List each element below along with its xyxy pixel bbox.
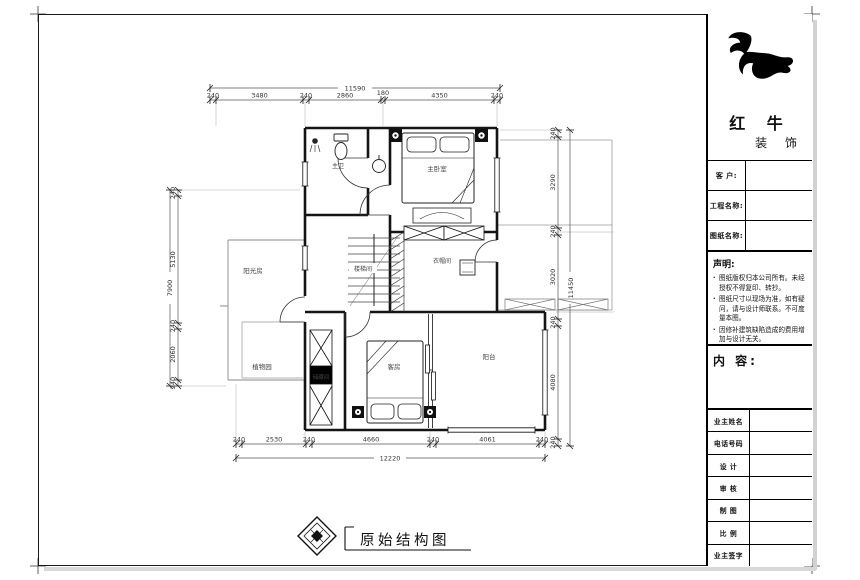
sign-row-drafting: 制 图 [708, 499, 812, 521]
field-value-client [746, 161, 812, 190]
sign-row-scale: 比 例 [708, 521, 812, 543]
field-value-drawing [746, 221, 812, 250]
content-section: 内 容: [708, 344, 812, 408]
field-label-project: 工程名称: [708, 191, 746, 220]
bull-logo-icon [718, 28, 804, 90]
field-label-drawing: 图纸名称: [708, 221, 746, 250]
statement-heading: 声明: [713, 257, 808, 270]
project-name-field-row: 工程名称: [708, 190, 812, 220]
sheet-shadow [44, 567, 816, 571]
brand-name: 红 牛 [708, 110, 812, 134]
field-value-project [746, 191, 812, 220]
sign-row-phone: 电话号码 [708, 431, 812, 453]
drawing-page: 主卫 主卧室 楼梯间 衣帽间 阳光房 植物园 储藏间 客房 阳台 [0, 0, 860, 580]
brand-suffix: 装 饰 [755, 134, 804, 151]
signature-table: 业主姓名 电话号码 设 计 审 核 制 图 比 例 业主签字 [708, 408, 812, 566]
statement-item: 图纸尺寸以现场为准，如有疑问，请与设计师联系。不可度量本图。 [713, 295, 808, 324]
drawing-name-field-row: 图纸名称: [708, 220, 812, 250]
statement-item: 图纸版权归本公司所有。未经授权不得复印、转抄。 [713, 274, 808, 293]
brand-logo: 红 牛 装 饰 [708, 14, 812, 160]
sheet-shadow [813, 20, 817, 570]
statement-item: 因修补建筑缺陷造成的费用增加与设计无关。 [713, 326, 808, 345]
field-label-client: 客 户: [708, 161, 746, 190]
statement-section: 声明: 图纸版权归本公司所有。未经授权不得复印、转抄。 图纸尺寸以现场为准，如有… [708, 250, 812, 344]
client-field-row: 客 户: [708, 160, 812, 190]
content-heading: 内 容: [713, 352, 807, 369]
sign-row-review: 审 核 [708, 476, 812, 498]
sign-row-design: 设 计 [708, 454, 812, 476]
sign-row-owner-signature: 业主签字 [708, 544, 812, 566]
title-block: 红 牛 装 饰 客 户: 工程名称: 图纸名称: 声明: 图纸版权归本公司所有。… [706, 14, 812, 566]
sign-row-owner-name: 业主姓名 [708, 410, 812, 431]
sheet-border [38, 14, 812, 566]
